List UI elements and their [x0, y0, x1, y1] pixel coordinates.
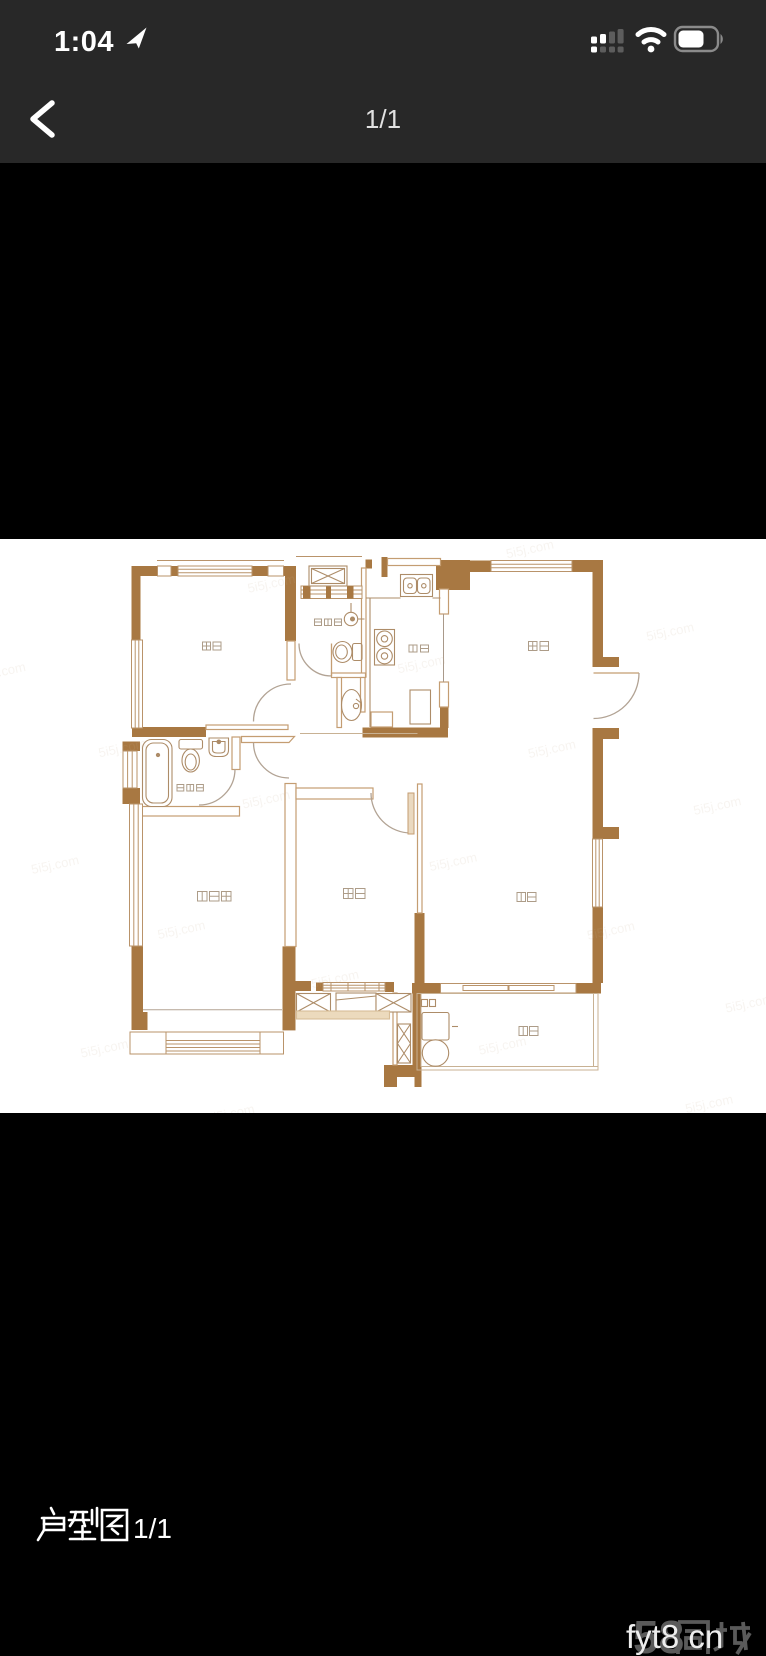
svg-text:5i5j.com: 5i5j.com	[477, 1033, 527, 1058]
svg-text:5i5j.com: 5i5j.com	[527, 736, 577, 761]
svg-text:5i5j.com: 5i5j.com	[97, 736, 147, 761]
svg-text:1/1: 1/1	[133, 1513, 172, 1544]
svg-text:5i5j.com: 5i5j.com	[692, 793, 742, 818]
svg-text:5i5j.com: 5i5j.com	[156, 917, 206, 942]
svg-text:5i5j.com: 5i5j.com	[0, 659, 27, 684]
svg-text:5i5j.com: 5i5j.com	[205, 1101, 255, 1113]
svg-text:5i5j.com: 5i5j.com	[396, 652, 446, 677]
svg-text:5i5j.com: 5i5j.com	[724, 991, 766, 1016]
svg-text:5i5j.com: 5i5j.com	[241, 787, 291, 812]
svg-text:1/1: 1/1	[365, 104, 401, 134]
svg-text:5i5j.com: 5i5j.com	[30, 852, 80, 877]
svg-text:5i5j.com: 5i5j.com	[79, 1036, 129, 1061]
svg-text:5i5j.com: 5i5j.com	[505, 539, 555, 561]
svg-text:5i5j.com: 5i5j.com	[684, 1091, 734, 1113]
svg-text:fyt8 cn: fyt8 cn	[626, 1618, 723, 1655]
svg-text:5i5j.com: 5i5j.com	[645, 619, 695, 644]
svg-text:5i5j.com: 5i5j.com	[428, 849, 478, 874]
